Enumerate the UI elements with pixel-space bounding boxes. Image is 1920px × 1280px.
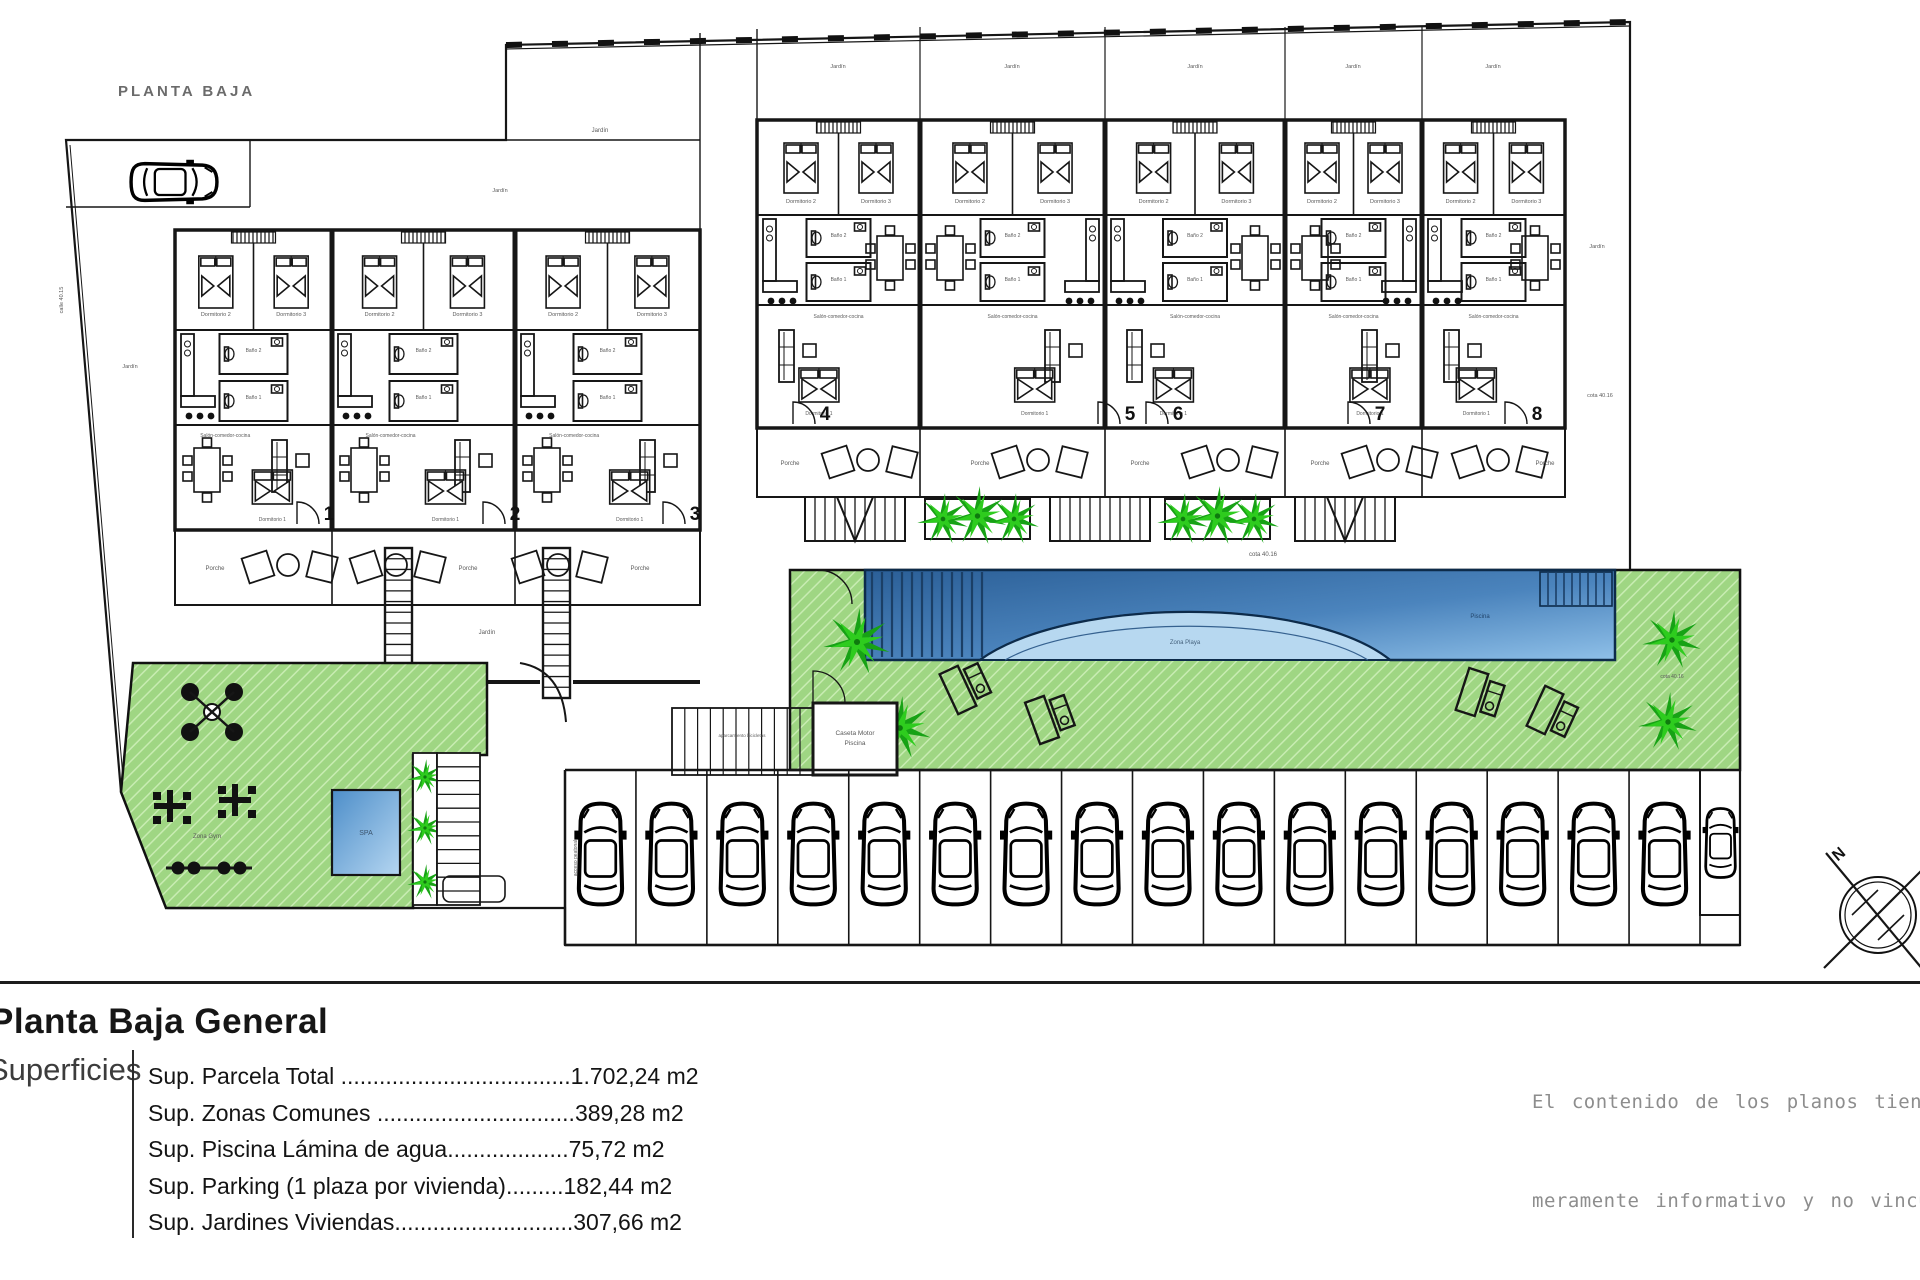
unit-number: 5 [1125, 404, 1136, 425]
gym-machine-icon [218, 784, 256, 818]
room-label: Baño 1 [1005, 277, 1021, 283]
parking-car [1142, 804, 1194, 905]
parking-car [858, 804, 910, 905]
svg-text:cota 40.16: cota 40.16 [1587, 393, 1613, 399]
street-parking-bay: calle 40.15Jardín [59, 140, 250, 370]
room-label: Salón-comedor-cocina [549, 433, 599, 439]
floor-plan-page: PLANTA BAJAcalle 40.15JardínJardínJardín… [0, 0, 1920, 1280]
unit-entry: 2 [483, 502, 520, 525]
unit-3: Dormitorio 2Dormitorio 3Baño 2Baño 1Saló… [515, 232, 700, 525]
legend-section-label: Superficies [0, 1052, 141, 1088]
room-label: Dormitorio 2 [786, 199, 816, 205]
gym-machine-icon [153, 790, 191, 824]
room-label: Baño 2 [831, 233, 847, 239]
room-label: Dormitorio 3 [1511, 199, 1541, 205]
unit-entry: 3 [663, 502, 700, 525]
compass-rose-icon: N [1824, 844, 1920, 980]
unit-entry: 7 [1348, 402, 1385, 425]
room-label: Porche [1310, 461, 1330, 467]
unit-number: 3 [690, 504, 701, 525]
parking-car [787, 804, 839, 905]
room-label: Salón-comedor-cocina [200, 433, 250, 439]
room-label: Dormitorio 3 [637, 312, 667, 318]
parking-car [1497, 804, 1549, 905]
stairs [1050, 497, 1150, 541]
legend-row: Sup. Zonas Comunes .....................… [148, 1095, 699, 1132]
plan-title: PLANTA BAJA [118, 83, 255, 100]
disclaimer-line2: meramente informativo y no vinculante [1532, 1185, 1920, 1218]
unit-number: 6 [1173, 404, 1184, 425]
room-label: Baño 2 [600, 348, 616, 354]
room-label: Baño 2 [1486, 233, 1502, 239]
room-label: Baño 1 [1346, 277, 1362, 283]
room-label: Salón-comedor-cocina [1468, 314, 1518, 320]
room-label: Baño 2 [1005, 233, 1021, 239]
walkway-stairs-planters: cota 40.16 [805, 486, 1395, 558]
legend-divider [132, 1050, 134, 1238]
spa-pool: SPA [332, 790, 400, 875]
room-label: Baño 1 [600, 395, 616, 401]
room-label: Porche [970, 461, 990, 467]
room-label: Dormitorio 2 [365, 312, 395, 318]
room-label: Salón-comedor-cocina [1170, 314, 1220, 320]
room-label: Porche [1130, 461, 1150, 467]
room-label: Salón-comedor-cocina [1328, 314, 1378, 320]
parking-car [716, 804, 768, 905]
parking-car [1284, 804, 1336, 905]
unit-entry: 6 [1146, 402, 1183, 425]
svg-text:Jardín: Jardín [1004, 64, 1019, 70]
svg-text:Jardín: Jardín [122, 364, 137, 370]
room-label: Baño 2 [1346, 233, 1362, 239]
room-label: Salón-comedor-cocina [987, 314, 1037, 320]
room-label: Baño 1 [1486, 277, 1502, 283]
unit-4: Dormitorio 2Dormitorio 3Baño 2Baño 1Saló… [757, 122, 920, 417]
room-label: Porche [630, 566, 650, 572]
parking-car [574, 804, 626, 905]
svg-text:SPA: SPA [359, 830, 373, 837]
room-label: Dormitorio 3 [1040, 199, 1070, 205]
room-label: Dormitorio 3 [1221, 199, 1251, 205]
room-label: Dormitorio 3 [452, 312, 482, 318]
room-label: Dormitorio 3 [861, 199, 891, 205]
unit-number: 4 [820, 404, 831, 425]
stairs [1295, 497, 1395, 541]
parking-car [1426, 804, 1478, 905]
room-label: Dormitorio 1 [1463, 411, 1490, 417]
room-label: Dormitorio 1 [616, 517, 643, 523]
svg-text:acceso peatonal: acceso peatonal [573, 840, 579, 876]
room-label: Caseta Motor [835, 730, 875, 737]
room-label: cota 40.16 [1249, 552, 1278, 558]
palm-tree-icon [1188, 486, 1246, 544]
parked-car [131, 160, 217, 204]
room-label: Dormitorio 2 [548, 312, 578, 318]
svg-text:Jardín: Jardín [592, 128, 609, 134]
legend-row: Sup. Jardines Viviendas.................… [148, 1204, 699, 1241]
room-label: Salón-comedor-cocina [813, 314, 863, 320]
parking-car [645, 804, 697, 905]
unit-number: 8 [1532, 404, 1543, 425]
parking-row: acceso peatonal [565, 770, 1740, 945]
parking-car [1703, 808, 1739, 877]
unit-number: 1 [324, 504, 335, 525]
parking-car [1355, 804, 1407, 905]
unit-6: Dormitorio 2Dormitorio 3Baño 2Baño 1Saló… [1105, 122, 1285, 417]
room-label: Porche [205, 566, 225, 572]
unit-number: 2 [510, 504, 521, 525]
room-label: Dormitorio 3 [1370, 199, 1400, 205]
right-porches: PorchePorchePorchePorchePorche [757, 428, 1565, 497]
parking-car [1638, 804, 1690, 905]
room-label: Baño 1 [1187, 277, 1203, 283]
svg-text:Jardín: Jardín [830, 64, 845, 70]
svg-text:Jardín: Jardín [492, 188, 507, 194]
room-label: Dormitorio 2 [955, 199, 985, 205]
palm-tree-icon [948, 486, 1006, 544]
room-label: Baño 2 [246, 348, 262, 354]
parking-car [1000, 804, 1052, 905]
room-label: Porche [780, 461, 800, 467]
left-building: Dormitorio 2Dormitorio 3Baño 2Baño 1Saló… [175, 230, 700, 530]
pergola-strip [437, 753, 505, 905]
unit-number: 7 [1375, 404, 1386, 425]
room-label: cota 40.16 [1660, 674, 1684, 680]
room-label: Porche [1535, 461, 1555, 467]
svg-text:Jardín: Jardín [1187, 64, 1202, 70]
svg-text:Zona Gym: Zona Gym [193, 834, 221, 840]
legend-separator-line [0, 981, 1920, 984]
legend-row: Sup. Parking (1 plaza por vivienda).....… [148, 1168, 699, 1205]
disclaimer-line1: El contenido de los planos tiene valor [1532, 1086, 1920, 1119]
disclaimer-text: El contenido de los planos tiene valor m… [1532, 1020, 1920, 1280]
room-label: Dormitorio 1 [1021, 411, 1048, 417]
room-label: Baño 2 [416, 348, 432, 354]
svg-text:Jardín: Jardín [1345, 64, 1360, 70]
room-label: Porche [458, 566, 478, 572]
room-label: Piscina [845, 740, 866, 747]
room-label: Baño 2 [1187, 233, 1203, 239]
unit-5: Dormitorio 2Dormitorio 3Baño 2Baño 1Saló… [920, 122, 1105, 417]
legend-row: Sup. Parcela Total .....................… [148, 1058, 699, 1095]
svg-text:PLANTA BAJA: PLANTA BAJA [118, 83, 255, 100]
palm-tree-icon [988, 493, 1039, 543]
parking-car [1567, 804, 1619, 905]
room-label: Baño 1 [246, 395, 262, 401]
pool: PiscinaZona Playa [865, 570, 1615, 660]
unit-entry: 8 [1505, 402, 1542, 425]
surface-table: Sup. Parcela Total .....................… [148, 1058, 699, 1241]
room-label: Dormitorio 2 [1307, 199, 1337, 205]
unit-1: Dormitorio 2Dormitorio 3Baño 2Baño 1Saló… [175, 232, 335, 525]
room-label: Salón-comedor-cocina [366, 433, 416, 439]
room-label: Baño 1 [416, 395, 432, 401]
parking-car [929, 804, 981, 905]
svg-text:Piscina: Piscina [1470, 614, 1490, 620]
room-label: Baño 1 [831, 277, 847, 283]
unit-2: Dormitorio 2Dormitorio 3Baño 2Baño 1Saló… [332, 232, 520, 525]
room-label: Dormitorio 1 [432, 517, 459, 523]
palm-tree-icon [1228, 493, 1279, 543]
room-label: Jardín [479, 630, 496, 636]
room-label: Dormitorio 2 [1139, 199, 1169, 205]
legend-row: Sup. Piscina Lámina de agua.............… [148, 1131, 699, 1168]
unit-entry: 1 [297, 502, 335, 525]
stairs [805, 497, 905, 541]
room-label: Dormitorio 2 [201, 312, 231, 318]
parking-car [1071, 804, 1123, 905]
legend-title: Planta Baja General [0, 1002, 328, 1042]
parking-car [1213, 804, 1265, 905]
unit-7: Dormitorio 2Dormitorio 3Baño 2Baño 1Saló… [1285, 122, 1422, 417]
svg-text:Zona Playa: Zona Playa [1170, 640, 1201, 646]
room-label: Dormitorio 3 [276, 312, 306, 318]
site-plan-drawing: PLANTA BAJAcalle 40.15JardínJardínJardín… [0, 0, 1920, 980]
svg-text:calle 40.15: calle 40.15 [59, 287, 65, 314]
room-label: Dormitorio 2 [1446, 199, 1476, 205]
pool-garden: PiscinaZona Playacota 40.16Caseta MotorP… [790, 570, 1740, 775]
unit-8: Dormitorio 2Dormitorio 3Baño 2Baño 1Saló… [1422, 122, 1565, 417]
unit-entry: 4 [793, 402, 831, 425]
svg-text:Jardín: Jardín [1485, 64, 1500, 70]
svg-text:Jardín: Jardín [1589, 244, 1604, 250]
room-label: Dormitorio 1 [259, 517, 286, 523]
left-porches: PorchePorchePorche [175, 530, 700, 605]
right-building: Dormitorio 2Dormitorio 3Baño 2Baño 1Saló… [757, 120, 1565, 428]
room-label: aparcamiento bicicletas [718, 733, 766, 738]
